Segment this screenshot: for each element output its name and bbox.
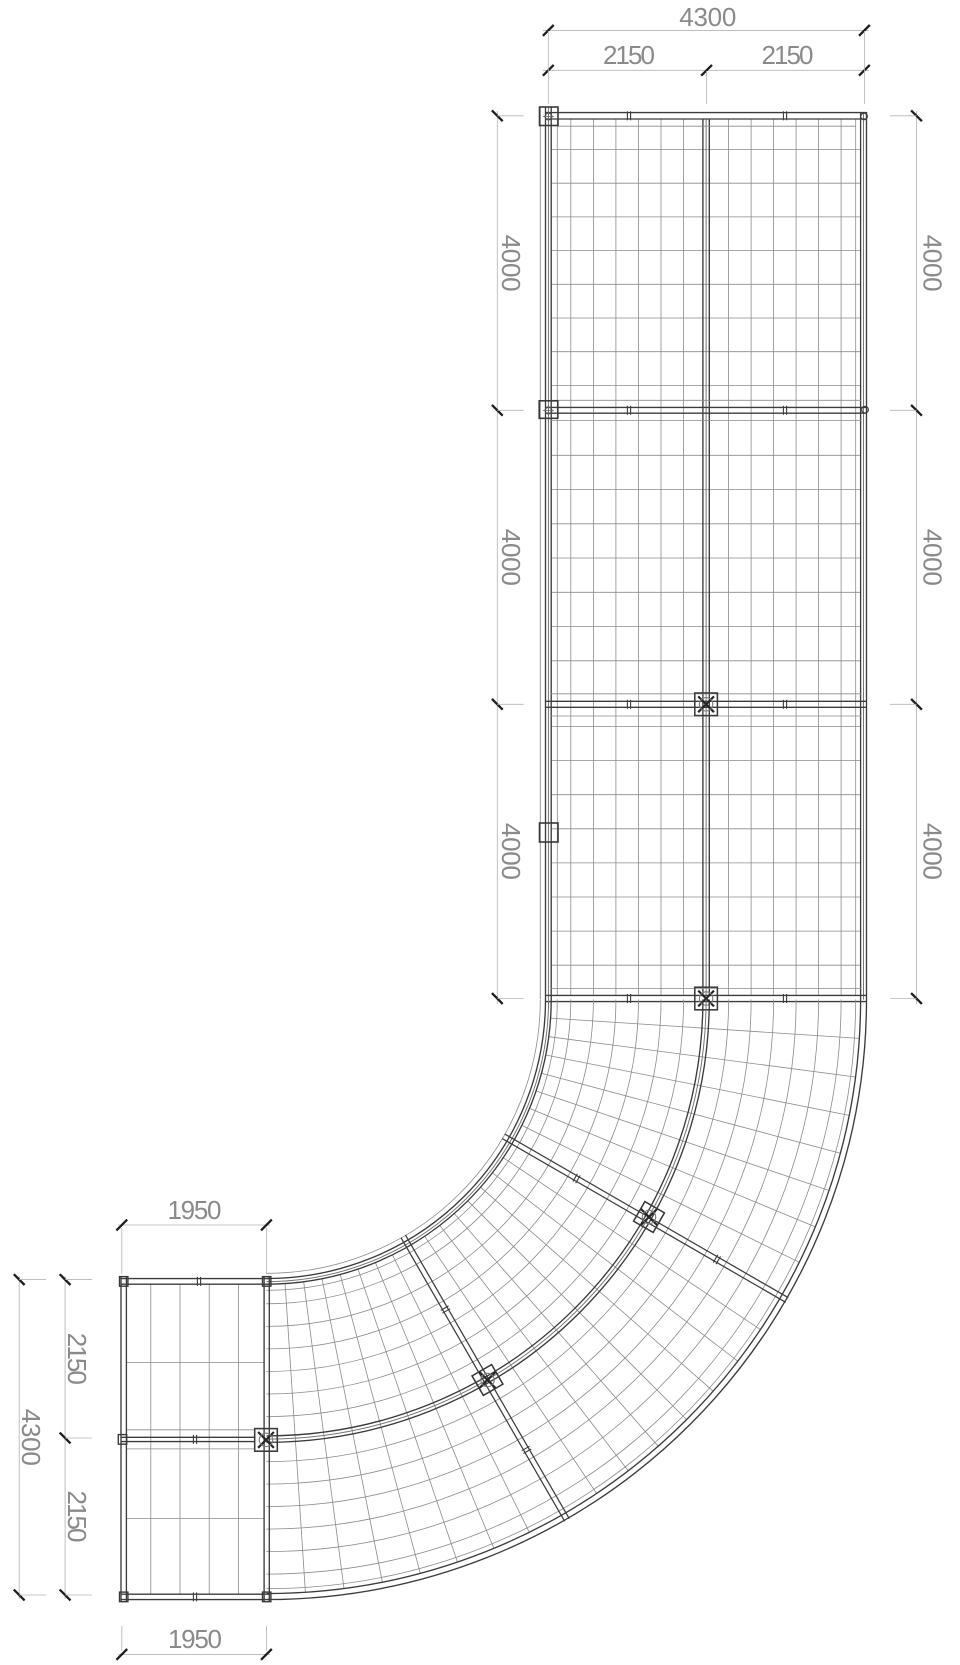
svg-text:4000: 4000 [496,823,526,880]
svg-text:4300: 4300 [16,1409,46,1466]
svg-text:2150: 2150 [603,40,655,70]
svg-text:2150: 2150 [62,1333,92,1385]
svg-text:2150: 2150 [762,40,814,70]
svg-text:4000: 4000 [918,235,948,292]
svg-text:4000: 4000 [918,823,948,880]
svg-text:4000: 4000 [496,235,526,292]
svg-text:4300: 4300 [679,2,736,32]
svg-text:1950: 1950 [168,1624,222,1654]
svg-text:4000: 4000 [496,529,526,586]
svg-text:1950: 1950 [168,1195,222,1225]
svg-text:4000: 4000 [918,529,948,586]
svg-text:2150: 2150 [62,1491,92,1543]
